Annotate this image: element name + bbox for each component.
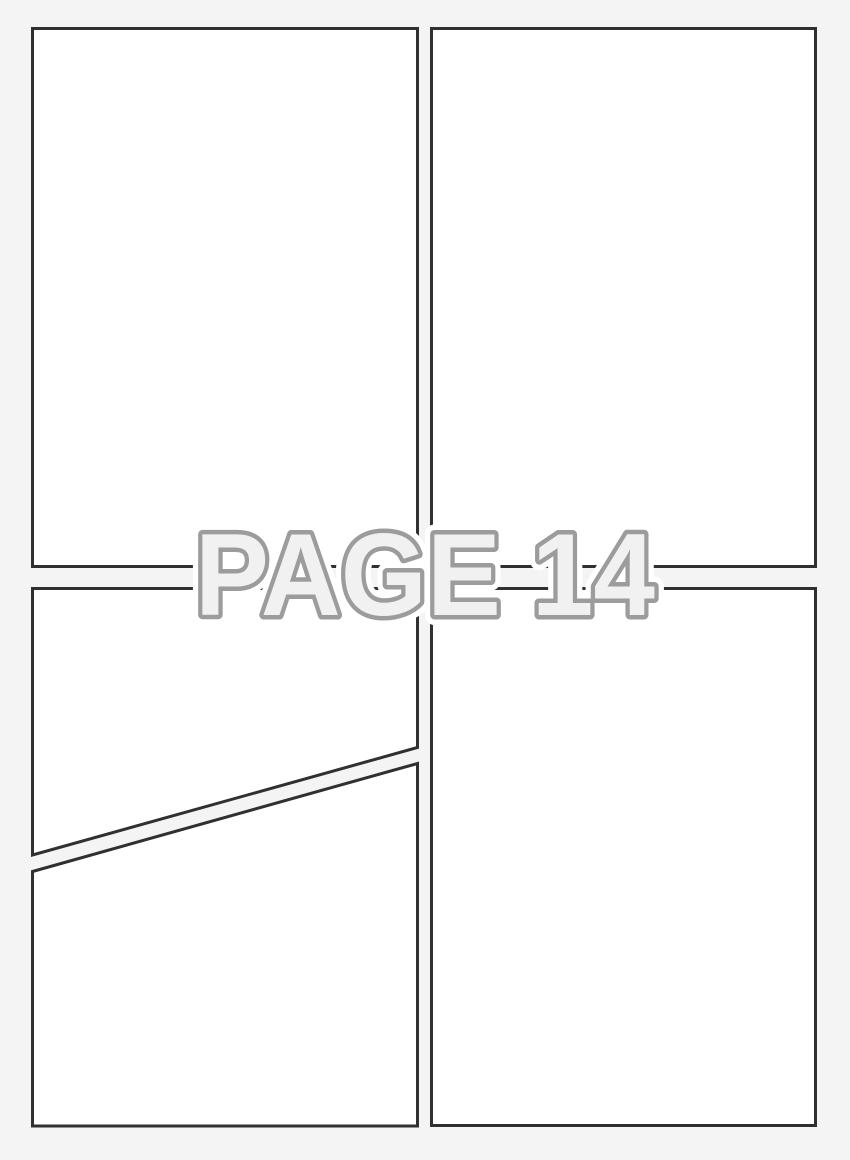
comic-page-template: PAGE 14 PAGE 14 — [0, 0, 850, 1160]
comic-page-svg: PAGE 14 PAGE 14 — [0, 0, 850, 1160]
panel-top-right — [432, 29, 816, 567]
panel-top-left — [33, 29, 418, 567]
page-number-watermark: PAGE 14 — [195, 509, 655, 640]
panel-bottom-right — [432, 589, 816, 1126]
